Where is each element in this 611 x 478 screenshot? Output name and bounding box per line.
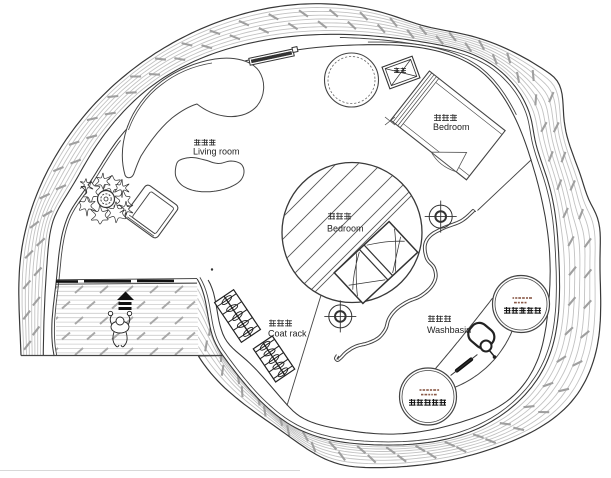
svg-text:Coat rack: Coat rack: [268, 329, 307, 339]
svg-text:Washbasin: Washbasin: [427, 325, 471, 335]
svg-text:Bedroom: Bedroom: [433, 122, 470, 132]
svg-text:Living room: Living room: [193, 147, 240, 157]
svg-text:Bedroom: Bedroom: [327, 224, 364, 234]
